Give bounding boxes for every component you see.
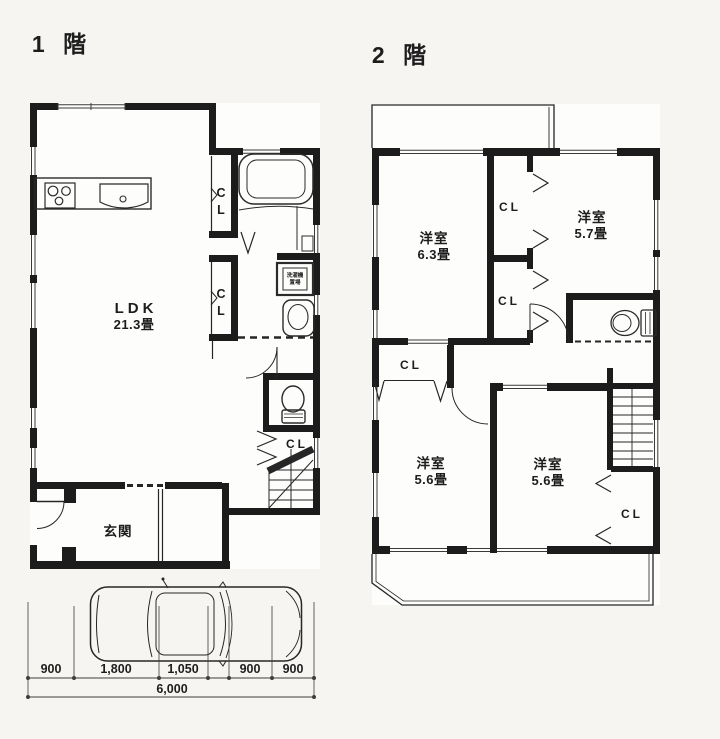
- ldk-label: LDK: [115, 300, 158, 317]
- room-63-size: 6.3畳: [417, 247, 450, 262]
- closet-mid-label-l: L: [217, 304, 225, 318]
- room-56r-label: 洋室: [534, 456, 563, 472]
- room-57-size: 5.7畳: [574, 226, 607, 241]
- floorplan-scan: 1 階 2 階: [0, 0, 720, 739]
- washer-label-line1: 洗濯機: [287, 271, 304, 279]
- room-57-label: 洋室: [578, 209, 607, 225]
- dim-seg-1: 900: [41, 662, 62, 676]
- room-56l-size: 5.6畳: [414, 472, 447, 487]
- floor1-plan: 洗濯機 置場: [30, 103, 320, 569]
- closet-top-label: CL: [499, 200, 521, 214]
- dim-total: 6,000: [156, 682, 187, 696]
- floor2-plan: 洋室 6.3畳 洋室 5.7畳 洋室 5.6畳 洋室 5.6畳 CL CL CL…: [372, 104, 660, 605]
- floorplan-drawing: 1 階 2 階: [0, 0, 720, 739]
- car-mirrors: [219, 582, 226, 666]
- washer-label-line2: 置場: [289, 278, 301, 286]
- room-56l-label: 洋室: [417, 455, 446, 471]
- closet-mid-label: CL: [498, 294, 520, 308]
- dim-seg-5: 900: [283, 662, 304, 676]
- dim-seg-2: 1,800: [100, 662, 131, 676]
- dim-seg-4: 900: [240, 662, 261, 676]
- floor2-paper: [372, 104, 660, 605]
- genkan-label: 玄関: [104, 523, 133, 539]
- floor2-title: 2 階: [372, 42, 432, 68]
- closet-right-label: CL: [621, 507, 643, 521]
- dim-seg-3: 1,050: [167, 662, 198, 676]
- closet-mid-label-c: C: [216, 287, 225, 301]
- floor1-title: 1 階: [32, 31, 92, 57]
- closet-upper-label-l: L: [217, 203, 225, 217]
- car-top-view: [91, 578, 302, 667]
- parking-area: 900 1,800 1,050 900 900 6,000: [26, 578, 316, 700]
- closet-hall-label: CL: [400, 358, 422, 372]
- room-56r-size: 5.6畳: [531, 473, 564, 488]
- stairs-closet-label: CL: [286, 437, 308, 451]
- closet-upper-label-c: C: [216, 186, 225, 200]
- ldk-size-label: 21.3畳: [114, 317, 155, 332]
- room-63-label: 洋室: [420, 230, 449, 246]
